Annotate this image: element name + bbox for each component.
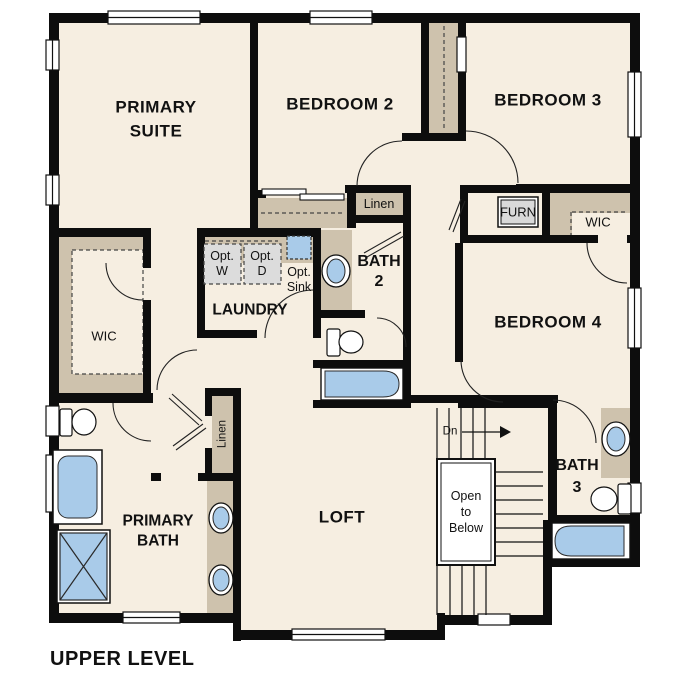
opt-dryer-label-1: Opt. <box>250 250 274 263</box>
wic-right-label: WIC <box>585 216 610 229</box>
stairs-down-label: Dn <box>443 426 458 438</box>
open-to-below-label-3: Below <box>449 522 483 535</box>
bath3-tub-icon <box>552 523 630 559</box>
primary-tub-icon <box>53 450 102 524</box>
floor-plan: PRIMARY SUITE BEDROOM 2 BEDROOM 3 BEDROO… <box>0 0 687 687</box>
bedroom4-label: BEDROOM 4 <box>494 314 601 331</box>
opt-dryer-label-2: D <box>257 265 266 278</box>
bath3-label-1: BATH <box>555 458 598 474</box>
wic-left-label: WIC <box>91 330 116 343</box>
primary-suite-label-1: PRIMARY <box>115 99 196 116</box>
primary-sink-1-icon <box>209 503 233 533</box>
plan-title: UPPER LEVEL <box>50 648 194 671</box>
primary-shower-icon <box>57 530 110 603</box>
furnace-label: FURN <box>500 206 536 219</box>
opt-washer-label-1: Opt. <box>210 250 234 263</box>
primary-toilet-icon <box>60 409 96 436</box>
open-to-below-label-1: Open <box>451 490 482 503</box>
opt-washer-label-2: W <box>216 265 228 278</box>
bedroom3-label: BEDROOM 3 <box>494 92 601 109</box>
open-to-below-label-2: to <box>461 506 471 519</box>
primary-suite-label-2: SUITE <box>130 123 183 140</box>
bath3-label-2: 3 <box>573 480 582 496</box>
opt-sink-label-1: Opt. <box>287 266 311 279</box>
opt-sink-label-2: Sink <box>287 281 311 294</box>
bath2-sink-icon <box>322 255 350 287</box>
bath2-label-1: BATH <box>357 254 400 270</box>
bath3-sink-icon <box>602 422 630 456</box>
laundry-label: LAUNDRY <box>212 302 287 318</box>
bedroom2-label: BEDROOM 2 <box>286 96 393 113</box>
primary-bath-label-2: BATH <box>137 533 179 549</box>
loft-label: LOFT <box>319 509 365 526</box>
linen-hall-label: Linen <box>364 198 395 211</box>
primary-bath-label-1: PRIMARY <box>123 513 194 529</box>
bath3-toilet-icon <box>591 484 631 514</box>
bath2-label-2: 2 <box>375 274 384 290</box>
bath2-tub-icon <box>321 368 403 400</box>
primary-sink-2-icon <box>209 565 233 595</box>
linen-primary-label: Linen <box>217 420 229 448</box>
opt-sink-box <box>287 236 311 259</box>
